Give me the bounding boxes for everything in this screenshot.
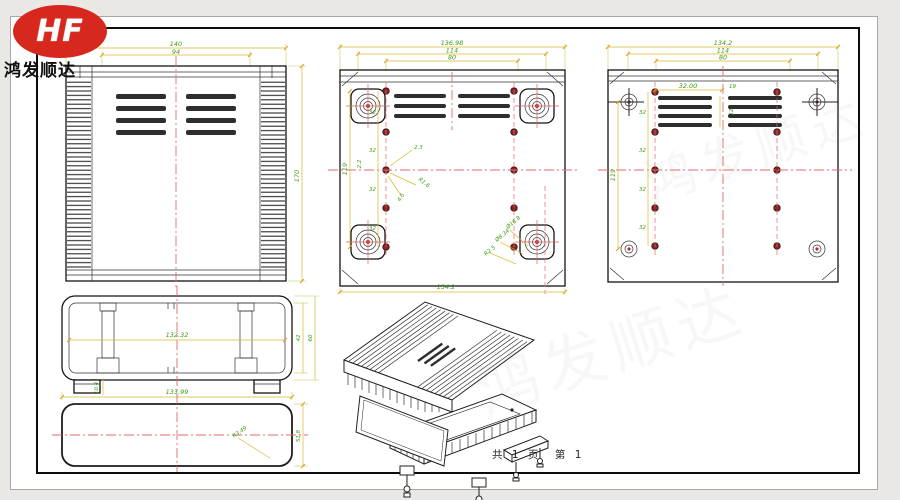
dim-back-gap: 2.3 [414,145,423,151]
back-dimensions-top: 136.98 114 80 [338,39,567,70]
dim-back-pitch: 32 [369,110,376,116]
section-view: 132.32 42 60 10.4 133.99 [56,288,322,406]
dim-right-height: 119 [609,169,617,181]
iso-front-panel [356,396,448,466]
bottom-view-drawing: 51.8 R3.49 [56,398,322,472]
dim-front-inner-width: 94 [172,48,180,56]
back-view: 136.98 114 80 [330,36,578,306]
dim-back-pitch: 32 [369,226,376,232]
drawing-canvas: 鸿发顺达 鸿发顺达 HF 鸿发顺达 140 94 170 [0,0,900,500]
company-name: 鸿发顺达 [4,56,76,81]
dim-back-pitch: 32 [369,187,376,193]
logo-brand-text: HF [36,14,84,49]
dim-section-outer-height: 60 [308,334,314,341]
page-footer: 共 1 页 第 1 [492,447,584,462]
section-view-drawing: 132.32 42 60 10.4 133.99 [56,288,322,402]
dim-right-pitch: 32 [639,187,646,193]
dim-back-offset: 2.2 [357,159,363,168]
iso-feet-screws [400,466,486,500]
dim-front-height: 170 [293,170,301,182]
dim-section-foot: 10.4 [94,381,100,394]
dim-back-pitch: 32 [369,148,376,154]
front-view: 140 94 170 [58,36,310,296]
dim-bottom-height: 51.8 [296,429,302,442]
bottom-view: 51.8 R3.49 [56,398,322,476]
right-fins [261,80,285,270]
dim-right-slot: 32.00 [679,82,698,90]
dim-right-slot-span: 80 [719,54,727,62]
dim-right-pitch: 32 [639,225,646,231]
dim-section-inner-width: 132.32 [166,331,189,339]
dim-back-height: 119 [341,163,349,175]
dim-right-center-gap: 19 [729,84,736,90]
dim-front-width: 140 [170,40,182,48]
dim-right-pitch: 32 [639,110,646,116]
front-view-drawing: 140 94 170 [58,36,310,292]
back-view-drawing: 136.98 114 80 [330,36,578,302]
dim-section-inner-height: 42 [296,334,302,341]
left-fins [67,80,91,270]
company-logo: HF [13,5,107,58]
dim-back-slot-span: 80 [448,54,456,62]
right-dimensions-top: 134.2 114 80 [606,39,840,70]
